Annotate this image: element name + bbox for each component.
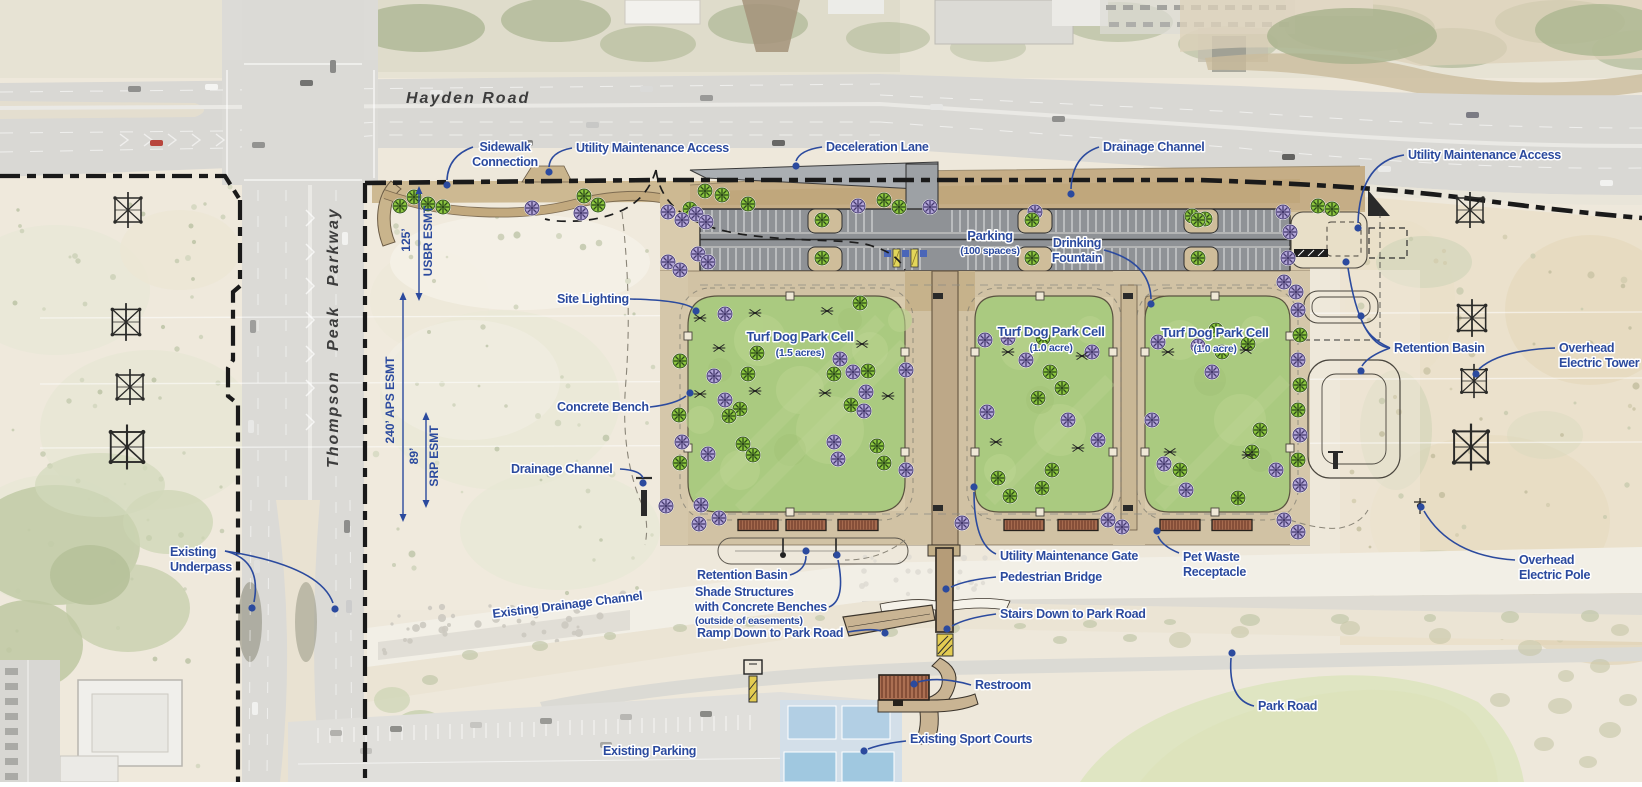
svg-text:(100 spaces): (100 spaces) (960, 245, 1019, 257)
svg-text:Park Road: Park Road (1258, 699, 1317, 713)
svg-text:with Concrete Benches: with Concrete Benches (694, 600, 827, 614)
svg-text:Ramp Down to Park Road: Ramp Down to Park Road (697, 626, 843, 640)
svg-text:Site Lighting: Site Lighting (557, 292, 629, 306)
svg-text:Turf Dog Park Cell: Turf Dog Park Cell (1161, 325, 1268, 340)
svg-text:Retention Basin: Retention Basin (697, 568, 788, 582)
svg-text:Hayden Road: Hayden Road (406, 90, 530, 107)
svg-text:USBR ESMT: USBR ESMT (421, 205, 435, 276)
svg-text:Pedestrian Bridge: Pedestrian Bridge (1000, 570, 1102, 584)
svg-text:Electric Tower: Electric Tower (1559, 356, 1640, 370)
svg-text:Utility Maintenance Access: Utility Maintenance Access (576, 141, 729, 155)
svg-text:Existing: Existing (170, 545, 216, 559)
svg-text:Retention Basin: Retention Basin (1394, 341, 1485, 355)
svg-text:Pet Waste: Pet Waste (1183, 550, 1240, 564)
svg-text:Concrete Bench: Concrete Bench (557, 400, 649, 414)
svg-text:SRP ESMT: SRP ESMT (427, 425, 441, 487)
svg-text:Fountain: Fountain (1052, 251, 1102, 265)
svg-text:(1.0 acre): (1.0 acre) (1193, 343, 1236, 355)
svg-text:Sidewalk: Sidewalk (479, 140, 530, 154)
svg-text:Restroom: Restroom (975, 678, 1031, 692)
svg-text:Utility Maintenance Access: Utility Maintenance Access (1408, 148, 1561, 162)
svg-text:Existing Parking: Existing Parking (603, 744, 696, 758)
svg-text:Existing Sport Courts: Existing Sport Courts (910, 732, 1033, 746)
svg-text:125’: 125’ (399, 228, 413, 251)
svg-text:Parking: Parking (967, 228, 1013, 243)
svg-text:Connection: Connection (472, 155, 538, 169)
svg-text:Overhead: Overhead (1559, 341, 1614, 355)
svg-text:Shade Structures: Shade Structures (695, 585, 794, 599)
svg-text:Overhead: Overhead (1519, 553, 1574, 567)
svg-text:Underpass: Underpass (170, 560, 232, 574)
svg-text:Receptacle: Receptacle (1183, 565, 1246, 579)
svg-text:Drainage Channel: Drainage Channel (1103, 140, 1204, 154)
svg-text:Drinking: Drinking (1053, 236, 1101, 250)
svg-text:Deceleration Lane: Deceleration Lane (826, 140, 929, 154)
svg-text:240’ APS ESMT: 240’ APS ESMT (383, 356, 397, 444)
svg-text:89’: 89’ (407, 448, 421, 465)
svg-text:Turf Dog Park Cell: Turf Dog Park Cell (746, 329, 853, 344)
svg-text:Thompson Peak Parkway: Thompson Peak Parkway (325, 207, 342, 468)
svg-text:Electric Pole: Electric Pole (1519, 568, 1590, 582)
svg-text:Turf Dog Park Cell: Turf Dog Park Cell (997, 324, 1104, 339)
svg-text:Utility Maintenance Gate: Utility Maintenance Gate (1000, 549, 1138, 563)
svg-text:(1.5 acres): (1.5 acres) (776, 347, 825, 359)
svg-text:Stairs Down to Park Road: Stairs Down to Park Road (1000, 607, 1146, 621)
svg-text:(1.0 acre): (1.0 acre) (1029, 342, 1072, 354)
svg-text:Drainage Channel: Drainage Channel (511, 462, 612, 476)
